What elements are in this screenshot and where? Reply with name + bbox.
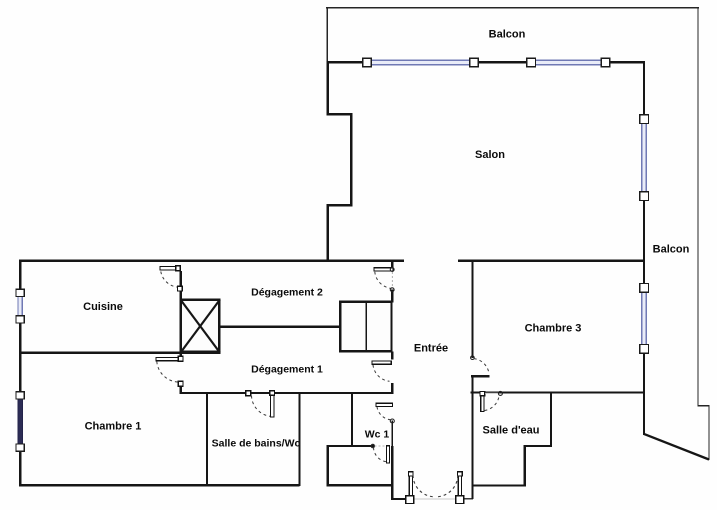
svg-text:Salle de bains/Wc: Salle de bains/Wc bbox=[212, 438, 301, 450]
svg-text:Chambre 3: Chambre 3 bbox=[525, 323, 582, 335]
svg-text:Wc 1: Wc 1 bbox=[365, 429, 390, 441]
svg-text:Chambre 1: Chambre 1 bbox=[85, 421, 142, 433]
svg-text:Cuisine: Cuisine bbox=[83, 301, 123, 313]
svg-text:Balcon: Balcon bbox=[489, 29, 526, 41]
svg-text:Dégagement 1: Dégagement 1 bbox=[251, 364, 323, 376]
svg-text:Salle d'eau: Salle d'eau bbox=[482, 425, 539, 437]
svg-text:Salon: Salon bbox=[475, 149, 505, 161]
svg-text:Entrée: Entrée bbox=[414, 343, 448, 355]
svg-text:Balcon: Balcon bbox=[653, 244, 690, 256]
svg-text:Dégagement 2: Dégagement 2 bbox=[251, 287, 323, 299]
